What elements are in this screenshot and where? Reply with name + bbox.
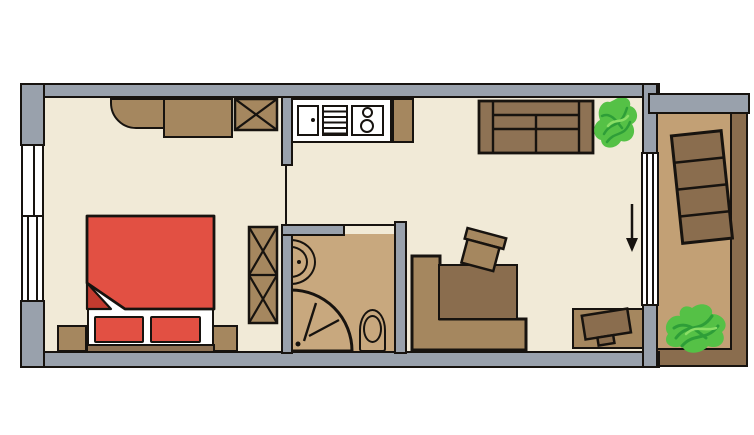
sofa (477, 99, 595, 156)
window-lower-left-pane-line-2 (36, 217, 38, 300)
wall-right-lower (642, 304, 658, 368)
floor-plan (0, 0, 754, 435)
balcony-door-pane-line-1 (646, 154, 648, 304)
chair (452, 228, 508, 274)
glazed-balcony-door (641, 152, 659, 306)
pillow-right (150, 316, 201, 343)
nightstand-left (57, 325, 87, 352)
wall-left-lower (20, 300, 45, 368)
wall-bathroom-right (394, 221, 407, 354)
counter-cabinet (392, 98, 414, 143)
wall-bedroom-divider (281, 96, 293, 166)
corner-shower (289, 286, 355, 353)
pillow-left (94, 316, 144, 343)
tv (578, 306, 636, 350)
wardrobe-crossed (233, 97, 279, 132)
plant-living-icon (594, 94, 640, 156)
window-lower-left-pane-line-1 (27, 217, 29, 300)
stove-burner-small (362, 107, 373, 118)
wall-bathroom-top (281, 224, 345, 236)
window-upper-left-pane-line (33, 146, 35, 215)
dresser (163, 98, 233, 138)
entry-direction-arrow-icon (624, 202, 640, 254)
bedroom-door-opening-line (285, 164, 287, 226)
lounge-chair (670, 128, 734, 248)
window-lower-left (21, 215, 44, 302)
kitchen-drainboard (322, 105, 348, 136)
toilet-bowl (363, 315, 382, 343)
bed-duvet (85, 214, 217, 312)
tall-wardrobe-crossed-double (247, 225, 279, 325)
wall-balcony-top (648, 93, 750, 114)
bathroom-door-opening-line (343, 224, 396, 226)
stove-burner-large (360, 119, 374, 133)
plant-balcony-icon (662, 300, 732, 356)
faucet-dot (311, 118, 315, 122)
wall-top (20, 83, 660, 98)
balcony-door-pane-line-2 (652, 154, 654, 304)
washbasin-drain-dot (297, 260, 301, 264)
wall-left-upper (20, 83, 45, 146)
wall-bottom (20, 351, 660, 368)
wall-bathroom-left (281, 224, 293, 354)
kitchen-sink (297, 105, 319, 136)
